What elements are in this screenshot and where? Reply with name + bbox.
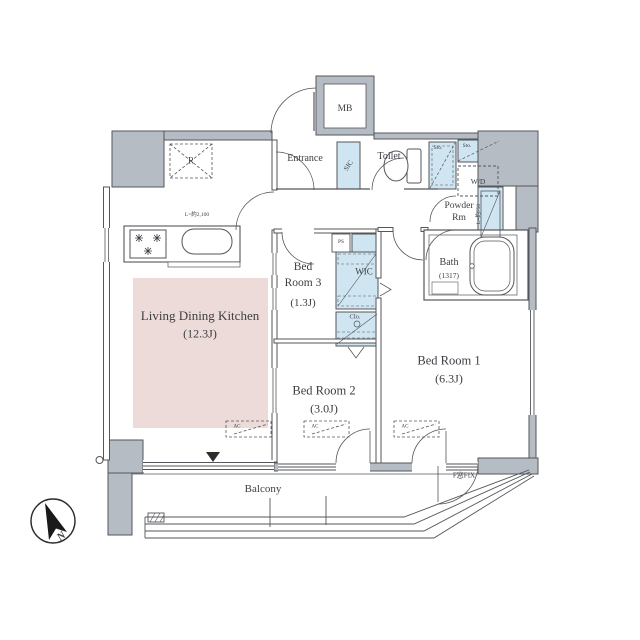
closet-label: Clo. (349, 315, 360, 322)
ldk-highlight-area (133, 278, 268, 428)
balcony-railing (132, 470, 534, 538)
bath-size: (1317) (439, 272, 459, 280)
refrigerator-label: R (188, 156, 194, 165)
entrance-label: Entrance (287, 154, 323, 165)
meter-box-label: MB (338, 105, 353, 115)
sink (182, 229, 232, 254)
bed3-size: (1.3J) (290, 298, 315, 310)
powder-room-label-line1: Powder (444, 202, 473, 212)
pipe-space-label: PS (338, 240, 344, 246)
exterior-fitting (96, 457, 103, 464)
bed2-label: Bed Room 2 (292, 384, 355, 397)
powder-room-label-line2: Rm (452, 214, 466, 224)
bed2-size: (3.0J) (310, 403, 338, 416)
wic-label: WIC (355, 267, 373, 276)
bed3-label-line2: Room 3 (285, 277, 322, 289)
ac-label-ldk: AC (234, 424, 241, 429)
compass (31, 499, 75, 543)
floor-plan-drawing (0, 0, 640, 640)
kitchen-counter (124, 226, 240, 267)
bed1-size: (6.3J) (435, 373, 463, 386)
wic-upper-area (352, 234, 378, 252)
kitchen-counter-length-label: L=約2,100 (185, 213, 209, 219)
storage1-label: Sto. (434, 146, 443, 152)
toilet-label: Toilet (377, 152, 400, 163)
front-door-arc (271, 88, 316, 133)
ldk-size: (12.3J) (183, 328, 217, 341)
closet-door-marker (348, 347, 364, 358)
ac-label-bed1: AC (402, 424, 409, 429)
floor-plan: Living Dining Kitchen (12.3J) Bed Room 1… (0, 0, 640, 640)
storage2-label: Sto. (463, 144, 472, 150)
wic-door-marker (380, 283, 391, 296)
balcony-label: Balcony (245, 484, 282, 496)
bed1-label: Bed Room 1 (417, 354, 480, 367)
washer-dryer-label: W/D (471, 178, 486, 186)
fix-window-label: F窓FIX (453, 472, 475, 479)
bed3-door-opening (282, 228, 314, 234)
ac-label-bed2: AC (312, 424, 319, 429)
bed3-label-line1: Bed (294, 261, 313, 273)
ldk-label: Living Dining Kitchen (141, 309, 259, 323)
bath-label: Bath (440, 258, 459, 269)
mirror-cabinet-length-label: L=約750 (477, 204, 483, 224)
